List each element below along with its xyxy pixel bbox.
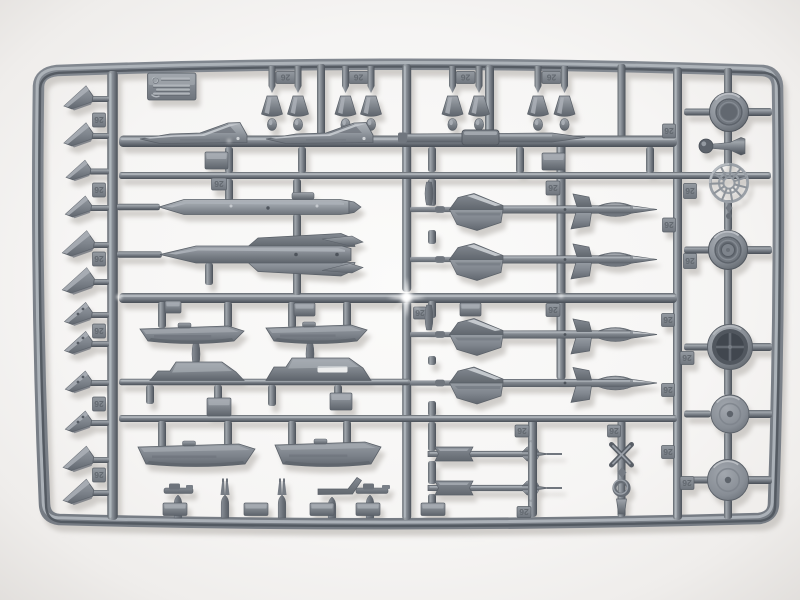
svg-text:26: 26 [547, 73, 557, 83]
svg-text:26: 26 [663, 447, 673, 457]
svg-text:26: 26 [682, 478, 692, 488]
svg-text:26: 26 [354, 73, 364, 83]
svg-text:26: 26 [94, 326, 104, 336]
svg-text:26: 26 [281, 73, 291, 83]
svg-text:26: 26 [94, 470, 104, 480]
svg-text:26: 26 [415, 308, 425, 318]
svg-text:26: 26 [685, 256, 695, 266]
svg-text:26: 26 [461, 73, 471, 83]
svg-text:26: 26 [548, 183, 558, 193]
svg-text:26: 26 [682, 353, 692, 363]
svg-text:26: 26 [94, 399, 104, 409]
svg-text:26: 26 [517, 426, 527, 436]
svg-text:26: 26 [548, 305, 558, 315]
svg-text:26: 26 [214, 179, 224, 189]
svg-text:26: 26 [94, 254, 104, 264]
svg-text:26: 26 [685, 186, 695, 196]
svg-text:26: 26 [609, 426, 619, 436]
svg-text:26: 26 [94, 115, 104, 125]
svg-text:26: 26 [664, 126, 674, 136]
svg-text:26: 26 [664, 220, 674, 230]
svg-text:26: 26 [663, 385, 673, 395]
svg-text:26: 26 [94, 185, 104, 195]
svg-text:26: 26 [519, 507, 529, 517]
svg-text:26: 26 [663, 315, 673, 325]
